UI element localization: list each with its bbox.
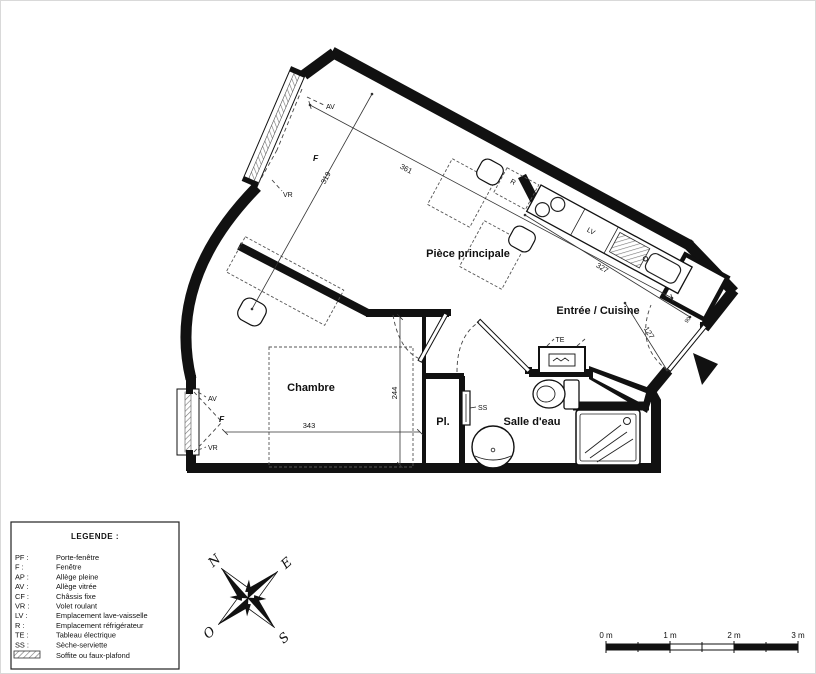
- svg-text:LV :: LV :: [15, 611, 28, 620]
- svg-text:VR :: VR :: [15, 602, 29, 611]
- dim-entry-width: 127: [642, 325, 656, 340]
- door-bathroom: [457, 319, 532, 374]
- electrical-panel-label: TE: [556, 337, 565, 344]
- svg-text:Volet roulant: Volet roulant: [56, 602, 97, 611]
- svg-text:Porte-fenêtre: Porte-fenêtre: [56, 553, 99, 562]
- svg-text:Tableau électrique: Tableau électrique: [56, 631, 116, 640]
- dim-bedroom-height: 244: [390, 387, 399, 400]
- svg-text:Emplacement lave-vaisselle: Emplacement lave-vaisselle: [56, 611, 148, 620]
- electrical-panel: TE: [539, 337, 585, 373]
- dim-main-depth: 319: [319, 170, 333, 185]
- entrance-arrow: [693, 353, 718, 385]
- room-label-main: Pièce principale: [426, 248, 510, 260]
- shower: [576, 410, 640, 465]
- fridge-label: R: [509, 178, 517, 187]
- svg-text:PF :: PF :: [15, 553, 29, 562]
- scale-1m: 1 m: [663, 631, 677, 640]
- svg-text:R :: R :: [15, 621, 24, 630]
- room-label-bedroom: Chambre: [287, 382, 335, 394]
- svg-text:CF :: CF :: [15, 592, 29, 601]
- towel-radiator-label: SS: [478, 405, 488, 412]
- svg-text:F :: F :: [15, 563, 24, 572]
- legend-row: VR :Volet roulant: [15, 602, 97, 611]
- dim-bedroom-width: 343: [303, 421, 316, 430]
- svg-text:AP :: AP :: [15, 572, 29, 581]
- legend-row: AV :Allège vitrée: [15, 582, 97, 591]
- scale-2m: 2 m: [727, 631, 741, 640]
- svg-text:Allège vitrée: Allège vitrée: [56, 582, 97, 591]
- window-f-label: F: [313, 153, 319, 163]
- dim-kitchen-run: 327: [595, 261, 610, 275]
- compass-rose: N E S O: [167, 517, 332, 674]
- compass-west-label: O: [201, 624, 219, 643]
- svg-text:Châssis fixe: Châssis fixe: [56, 592, 96, 601]
- svg-text:Emplacement réfrigérateur: Emplacement réfrigérateur: [56, 621, 144, 630]
- window-f-label: F: [219, 414, 225, 424]
- svg-text:Fenêtre: Fenêtre: [56, 563, 81, 572]
- bed: [269, 347, 413, 467]
- towel-radiator: SS: [462, 391, 488, 425]
- floor-plan-drawing: R LV TE SS: [1, 1, 816, 674]
- room-label-entry: Entrée / Cuisine: [556, 305, 639, 317]
- window-vr-label: VR: [283, 192, 293, 199]
- window-vr-label: VR: [208, 445, 218, 452]
- washbasin: [472, 426, 514, 468]
- room-label-bathroom: Salle d'eau: [503, 416, 560, 428]
- window-living: [242, 67, 306, 187]
- svg-text:Allège pleine: Allège pleine: [56, 572, 98, 581]
- window-bedroom: [177, 389, 199, 455]
- svg-text:SS :: SS :: [15, 640, 29, 649]
- soffit-swatch: [14, 651, 40, 658]
- floor-plan-page: R LV TE SS: [0, 0, 816, 674]
- window-av-label: AV: [326, 104, 335, 111]
- legend: LEGENDE : PF :Porte-fenêtre F :Fenêtre A…: [11, 522, 179, 669]
- legend-title: LEGENDE :: [71, 532, 119, 541]
- svg-text:TE :: TE :: [15, 631, 29, 640]
- room-label-closet: Pl.: [436, 416, 449, 428]
- legend-row: CF :Châssis fixe: [15, 592, 96, 601]
- window-av-label: AV: [208, 396, 217, 403]
- legend-row: AP :Allège pleine: [15, 572, 98, 581]
- scale-bar: 0 m 1 m 2 m 3 m: [599, 631, 805, 653]
- legend-row: PF :Porte-fenêtre: [15, 553, 99, 562]
- scale-3m: 3 m: [791, 631, 805, 640]
- svg-text:Soffite ou faux-plafond: Soffite ou faux-plafond: [56, 651, 130, 660]
- dim-main-width: 361: [399, 162, 414, 176]
- compass-south-label: S: [276, 630, 293, 647]
- legend-row: SS :Sèche-serviette: [15, 640, 107, 649]
- toilet: [533, 380, 579, 409]
- compass-east-label: E: [278, 554, 296, 573]
- svg-text:AV :: AV :: [15, 582, 28, 591]
- svg-text:Sèche-serviette: Sèche-serviette: [56, 640, 107, 649]
- scale-0m: 0 m: [599, 631, 613, 640]
